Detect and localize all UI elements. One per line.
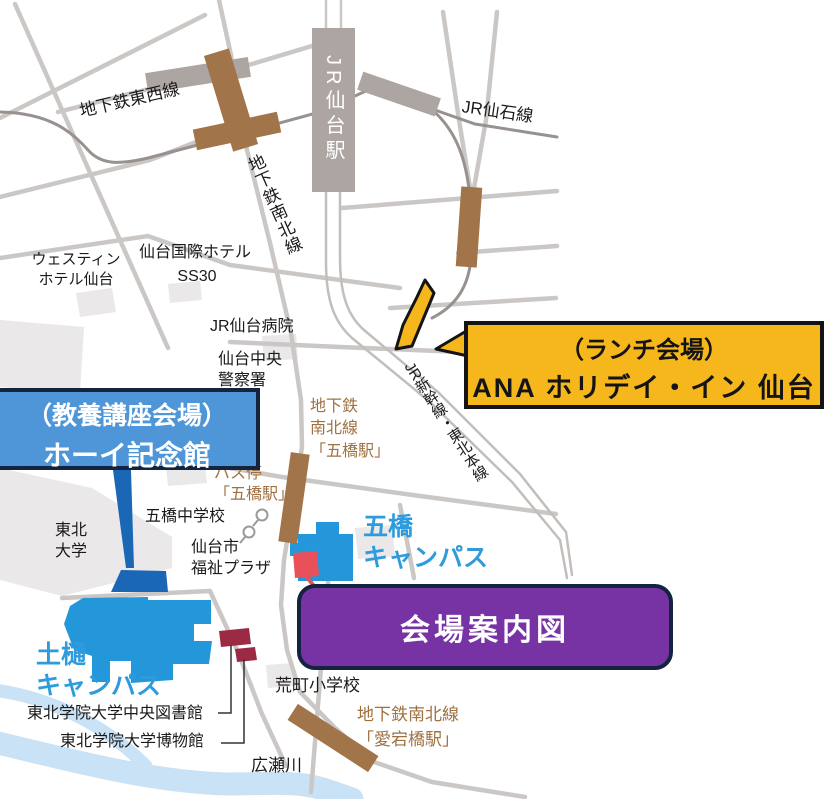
- label-itsutsubashi-campus: 五橋 キャンパス: [363, 512, 488, 575]
- bus-stop-icon: [244, 527, 255, 538]
- lecture-venue-callout: （教養講座会場） ホーイ記念館: [0, 388, 260, 470]
- label-tsuchitoi-campus: 土樋 キャンパス: [36, 640, 161, 703]
- lunch-venue-line1: （ランチ会場）: [468, 330, 820, 365]
- station-marker-senseki: [357, 72, 441, 117]
- road: [326, 0, 341, 28]
- museum-leader-line: [221, 659, 244, 743]
- bus-stop-icon-stem: [253, 520, 258, 526]
- label-fukushi-plaza: 仙台市 福祉プラザ: [191, 538, 271, 580]
- label-jr-sendai-station: JR仙台駅: [312, 30, 355, 190]
- building-westin: [76, 288, 116, 317]
- road: [230, 265, 400, 288]
- label-tohoku-university: 東北 大学: [55, 521, 87, 563]
- library-building-marker: [219, 628, 251, 647]
- road: [342, 191, 557, 208]
- lecture-venue-line2: ホーイ記念館: [0, 434, 256, 474]
- label-itsutsubashi-subway-station: 地下鉄 南北線 「五橋駅」: [310, 396, 390, 463]
- label-central-library: 東北学院大学中央図書館: [27, 704, 203, 725]
- city-block: [0, 320, 84, 393]
- label-atagobashi-subway-station: 地下鉄南北線 「愛宕橋駅」: [350, 703, 466, 752]
- label-kokusai-hotel: 仙台国際ホテル: [139, 243, 251, 264]
- label-hirose-river: 広瀬川: [251, 755, 302, 777]
- hoey-hall-marker: [293, 551, 319, 578]
- museum-building-marker: [235, 647, 257, 662]
- library-leader-line: [218, 645, 231, 713]
- label-museum: 東北学院大学博物館: [60, 732, 204, 753]
- label-jr-hospital: JR仙台病院: [210, 317, 294, 338]
- ana-hotel-building-marker: [396, 280, 434, 349]
- label-ss30: SS30: [139, 267, 255, 288]
- road: [62, 591, 210, 598]
- lunch-venue-line2: ANA ホリデイ・イン 仙台: [468, 366, 820, 405]
- lunch-venue-callout: （ランチ会場） ANA ホリデイ・イン 仙台: [464, 321, 824, 409]
- venue-map: 地下鉄東西線 JR仙台駅 JR仙石線 地下鉄南北線 ウェスティン ホテル仙台 仙…: [0, 0, 830, 799]
- bus-stop-icon: [257, 510, 268, 521]
- label-aramachi-elementary: 荒町小学校: [275, 675, 360, 697]
- label-police-station: 仙台中央 警察署: [218, 350, 282, 392]
- label-itsutsubashi-jhs: 五橋中学校: [145, 507, 225, 528]
- lecture-venue-line1: （教養講座会場）: [0, 396, 256, 432]
- map-title-banner: 会場案内図: [297, 584, 673, 670]
- label-westin-hotel: ウェスティン ホテル仙台: [28, 250, 124, 289]
- campus-trapezoid-shape: [111, 570, 168, 592]
